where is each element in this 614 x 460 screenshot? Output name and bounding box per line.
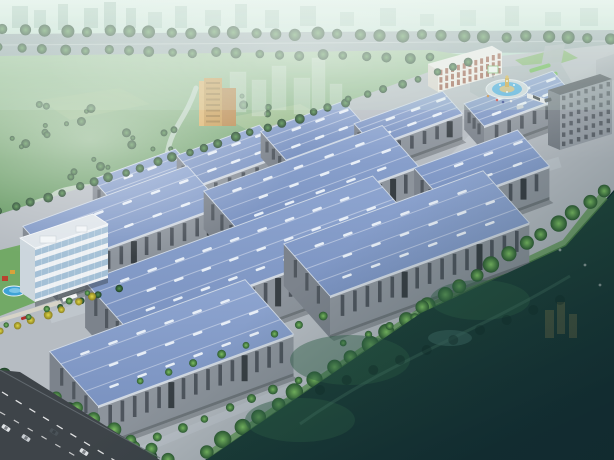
atmospheric-haze [0,0,614,460]
industrial-park-aerial-image [0,0,614,460]
bottom-right-dark-wash [0,0,614,460]
rendered-scene [0,0,614,460]
